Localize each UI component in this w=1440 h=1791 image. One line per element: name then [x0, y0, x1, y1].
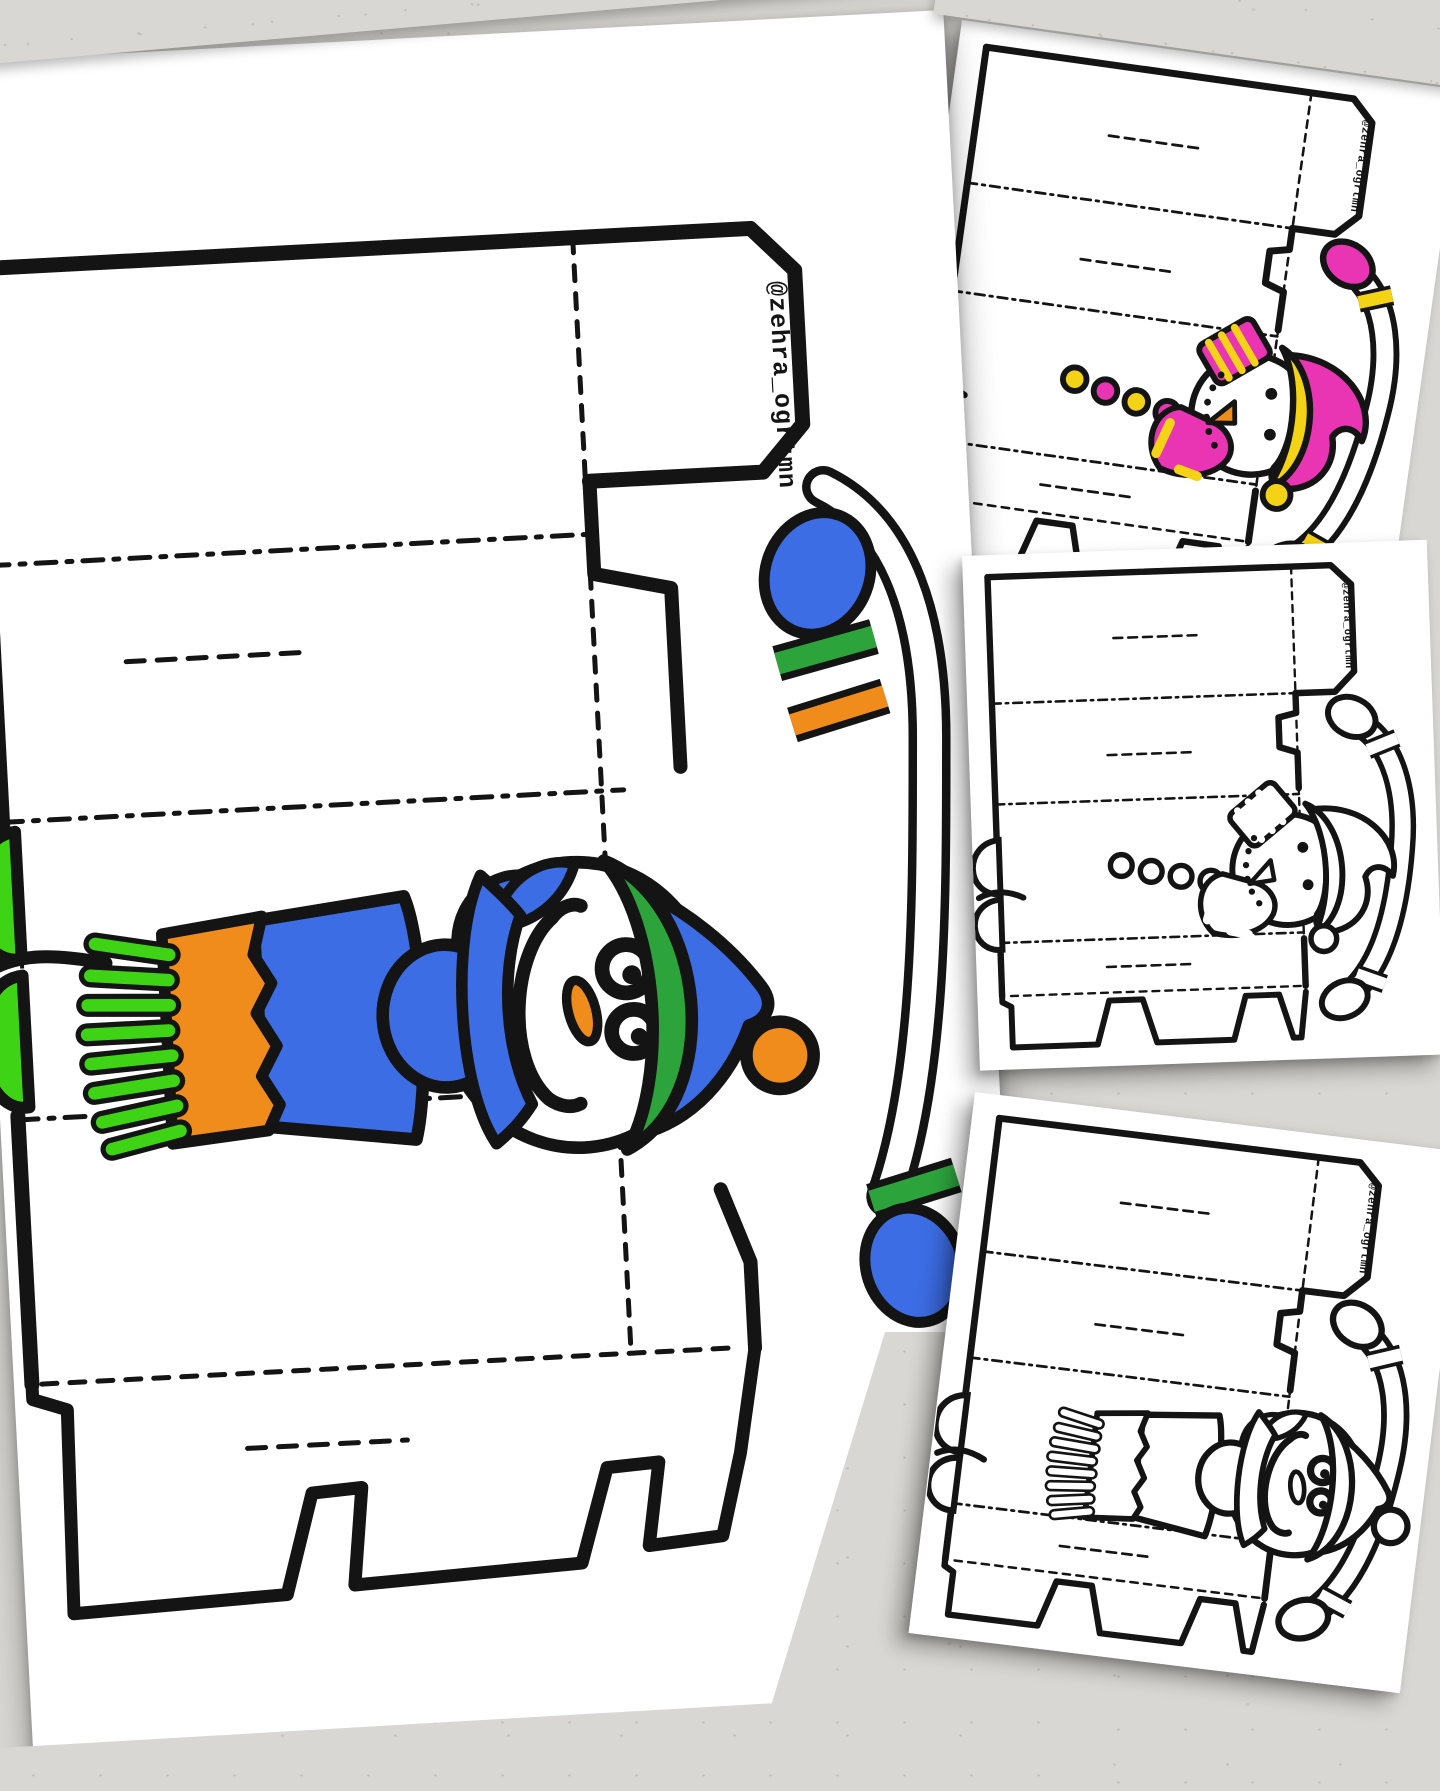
cut-top-and-tab	[0, 226, 805, 513]
mockup-scene: @zehra_ogrtmn	[0, 0, 1440, 1791]
template-card-outline-beanie	[962, 540, 1440, 1071]
card-drawing-bw-smiley	[909, 1092, 1440, 1693]
fold-line-bottom	[42, 1348, 733, 1384]
box-template-chrome	[913, 1115, 1427, 1666]
snowman-smiley-large	[79, 849, 818, 1177]
template-card-outline-smiley	[909, 1092, 1440, 1693]
arm-piece	[740, 481, 978, 1340]
snowman-beanie	[1108, 776, 1397, 959]
arm-band-1	[776, 637, 875, 664]
fold-line-1	[0, 534, 588, 565]
arm-band-2	[791, 696, 886, 725]
box-template-chrome	[963, 563, 1410, 1049]
cut-right-lower	[721, 1188, 755, 1349]
cut-right-upper-notch	[589, 477, 680, 771]
snowman-beanie	[1049, 292, 1379, 520]
mitten-bump-1	[0, 832, 22, 962]
card-drawing-bw-beanie	[962, 540, 1440, 1071]
fold-line-2	[2, 790, 623, 823]
cut-bottom-flaps	[32, 1347, 767, 1616]
fold-line-vertical	[573, 238, 631, 1353]
